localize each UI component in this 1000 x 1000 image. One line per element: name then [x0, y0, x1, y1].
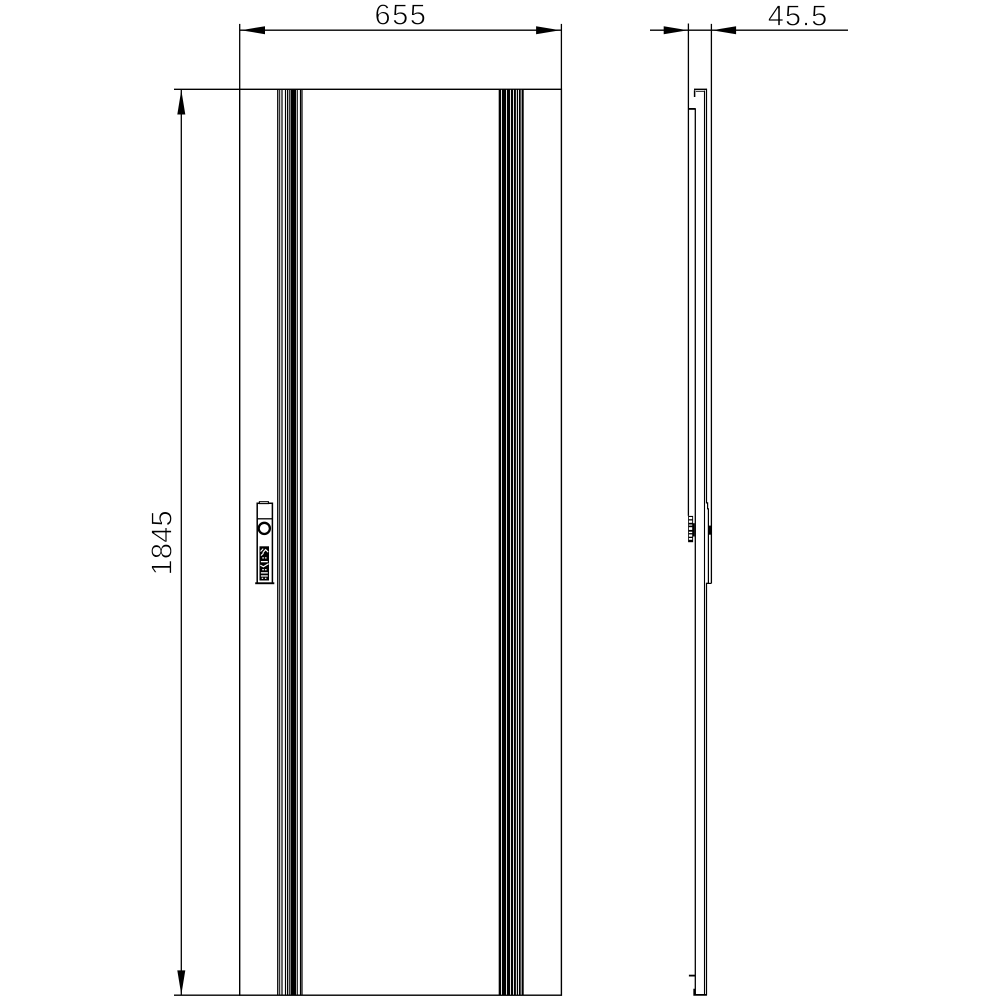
svg-text:655: 655: [375, 0, 428, 32]
svg-text:45.5: 45.5: [768, 1, 828, 33]
svg-text:1845: 1845: [147, 510, 179, 575]
